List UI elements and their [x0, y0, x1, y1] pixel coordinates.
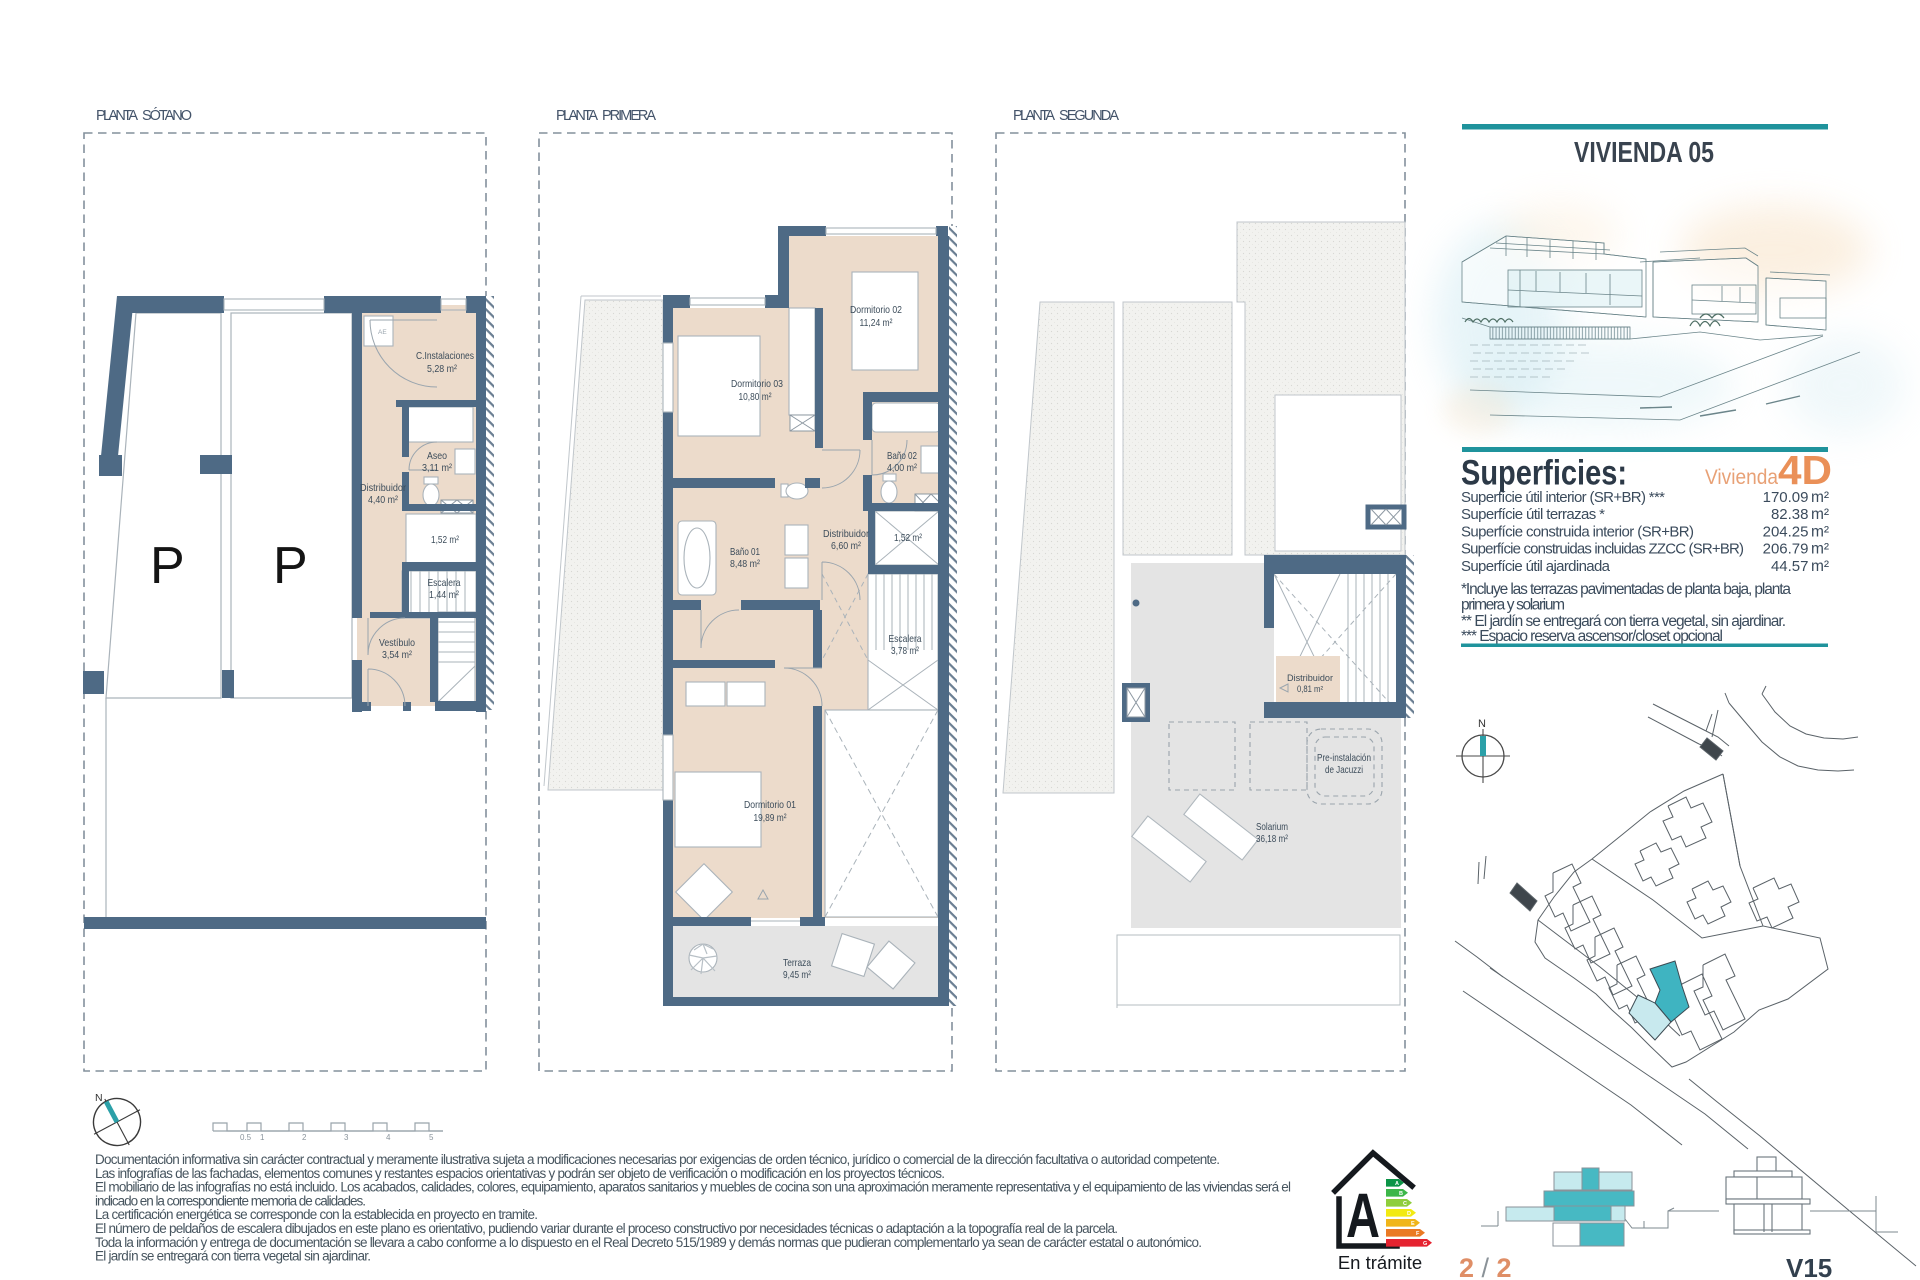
- svg-text:Dormitorio 02: Dormitorio 02: [850, 304, 902, 316]
- svg-text:G: G: [1423, 1241, 1427, 1247]
- svg-text:Superfície útil interior (SR+B: Superfície útil interior (SR+BR) ***: [1461, 489, 1665, 506]
- svg-text:Toda la información y entrega: Toda la información y entrega de documen…: [95, 1235, 1202, 1250]
- svg-text:Superfície construidas incluid: Superfície construidas incluidas ZZCC (S…: [1461, 541, 1744, 558]
- svg-text:D: D: [1407, 1211, 1411, 1217]
- svg-text:0.5: 0.5: [240, 1133, 252, 1142]
- svg-text:Distribuidor: Distribuidor: [1287, 673, 1333, 683]
- svg-text:V15: V15: [1786, 1253, 1832, 1280]
- svg-text:indicado en la correspondiente: indicado en la correspondiente memoria d…: [95, 1193, 366, 1208]
- svg-text:Vestíbulo: Vestíbulo: [379, 637, 415, 649]
- svg-text:2 / 2: 2 / 2: [1459, 1253, 1512, 1280]
- svg-text:4,40 m²: 4,40 m²: [368, 494, 398, 506]
- svg-text:C.Instalaciones: C.Instalaciones: [416, 350, 474, 362]
- svg-text:N: N: [95, 1092, 103, 1104]
- svg-text:m²: m²: [1811, 506, 1829, 523]
- svg-text:5,28 m²: 5,28 m²: [427, 363, 457, 375]
- svg-text:E: E: [1411, 1221, 1415, 1227]
- svg-text:Superfície útil ajardinada: Superfície útil ajardinada: [1461, 558, 1611, 575]
- svg-text:*** Espacio reserva ascensor/c: *** Espacio reserva ascensor/closet opci…: [1461, 628, 1723, 645]
- svg-text:P: P: [273, 537, 308, 595]
- svg-text:primera y solarium: primera y solarium: [1461, 597, 1565, 614]
- svg-text:B: B: [1399, 1191, 1403, 1197]
- svg-text:1: 1: [260, 1133, 265, 1142]
- svg-text:82.38: 82.38: [1771, 506, 1809, 523]
- svg-text:Las infografías de las fachada: Las infografías de las fachadas, element…: [95, 1166, 945, 1181]
- svg-text:Dormitorio 03: Dormitorio 03: [731, 378, 783, 390]
- svg-text:44.57: 44.57: [1771, 558, 1809, 575]
- svg-text:PLANTA: PLANTA: [556, 108, 598, 124]
- svg-text:Vivienda: Vivienda: [1705, 466, 1778, 489]
- svg-text:5: 5: [429, 1133, 434, 1142]
- svg-text:Distribuidor: Distribuidor: [360, 482, 406, 494]
- svg-text:A: A: [1346, 1181, 1380, 1251]
- svg-text:Superficies:: Superficies:: [1461, 454, 1627, 493]
- svg-text:206.79: 206.79: [1763, 541, 1809, 558]
- svg-text:Aseo: Aseo: [427, 450, 447, 462]
- svg-text:Superfície útil terrazas *: Superfície útil terrazas *: [1461, 506, 1605, 523]
- svg-text:3: 3: [344, 1133, 349, 1142]
- svg-text:0,81 m²: 0,81 m²: [1297, 684, 1323, 694]
- svg-text:Dormitorio 01: Dormitorio 01: [744, 799, 796, 811]
- svg-text:El mobiliario de las infografí: El mobiliario de las infografías no está…: [95, 1180, 1291, 1195]
- svg-text:11,24 m²: 11,24 m²: [860, 317, 893, 329]
- svg-text:3,78 m²: 3,78 m²: [891, 645, 919, 657]
- svg-text:m²: m²: [1811, 489, 1829, 506]
- svg-text:A: A: [1395, 1181, 1399, 1187]
- svg-text:VIVIENDA 05: VIVIENDA 05: [1574, 137, 1714, 169]
- svg-text:Documentación informativa sin: Documentación informativa sin carácter c…: [95, 1152, 1220, 1167]
- svg-text:En trámite: En trámite: [1338, 1252, 1422, 1273]
- svg-text:3,11 m²: 3,11 m²: [422, 462, 452, 474]
- svg-text:*Incluye las terrazas paviment: *Incluye las terrazas pavimentadas de pl…: [1461, 581, 1791, 598]
- svg-text:Baño 02: Baño 02: [887, 450, 917, 462]
- svg-text:AE: AE: [378, 329, 387, 336]
- svg-text:SÓTANO: SÓTANO: [142, 107, 192, 124]
- svg-text:m²: m²: [1811, 541, 1829, 558]
- svg-text:Solarium: Solarium: [1256, 821, 1288, 833]
- svg-text:3,54 m²: 3,54 m²: [382, 649, 412, 661]
- svg-text:4: 4: [386, 1133, 391, 1142]
- svg-text:C: C: [1403, 1201, 1407, 1207]
- svg-text:170.09: 170.09: [1763, 489, 1809, 506]
- svg-text:36,18 m²: 36,18 m²: [1256, 833, 1288, 845]
- svg-text:PLANTA: PLANTA: [1013, 108, 1055, 124]
- svg-text:PLANTA: PLANTA: [96, 108, 138, 124]
- svg-text:N: N: [1478, 718, 1486, 730]
- svg-text:PRIMERA: PRIMERA: [602, 108, 656, 124]
- svg-text:Pre-instalación: Pre-instalación: [1317, 752, 1371, 764]
- svg-text:Superfície construida interior: Superfície construida interior (SR+BR): [1461, 523, 1694, 540]
- svg-text:4D: 4D: [1778, 447, 1832, 493]
- svg-text:1,52 m²: 1,52 m²: [431, 534, 459, 546]
- svg-text:Terraza: Terraza: [783, 957, 811, 969]
- svg-text:El jardín se entregará con tie: El jardín se entregará con tierra vegeta…: [95, 1249, 371, 1264]
- svg-text:Escalera: Escalera: [889, 633, 922, 645]
- svg-text:9,45 m²: 9,45 m²: [783, 969, 811, 981]
- svg-text:P: P: [150, 537, 185, 595]
- svg-text:204.25: 204.25: [1763, 523, 1809, 540]
- svg-text:Escalera: Escalera: [428, 577, 461, 589]
- svg-text:1,52 m²: 1,52 m²: [894, 532, 922, 544]
- svg-text:La certificación energética se: La certificación energética se correspon…: [95, 1207, 538, 1222]
- svg-text:1,44 m²: 1,44 m²: [429, 589, 459, 601]
- svg-text:4,00 m²: 4,00 m²: [887, 462, 917, 474]
- svg-text:6,60 m²: 6,60 m²: [831, 540, 861, 552]
- svg-text:8,48 m²: 8,48 m²: [730, 558, 760, 570]
- svg-text:m²: m²: [1811, 523, 1829, 540]
- svg-text:10,80 m²: 10,80 m²: [739, 391, 772, 403]
- svg-text:Baño 01: Baño 01: [730, 546, 760, 558]
- svg-text:El número de peldaños de escal: El número de peldaños de escalera dibuja…: [95, 1221, 1118, 1236]
- svg-text:SEGUNDA: SEGUNDA: [1059, 108, 1119, 124]
- svg-text:Distribuidor: Distribuidor: [823, 528, 869, 540]
- svg-text:m²: m²: [1811, 558, 1829, 575]
- svg-text:de Jacuzzi: de Jacuzzi: [1325, 764, 1363, 776]
- svg-text:2: 2: [302, 1133, 307, 1142]
- svg-text:19,89 m²: 19,89 m²: [754, 812, 787, 824]
